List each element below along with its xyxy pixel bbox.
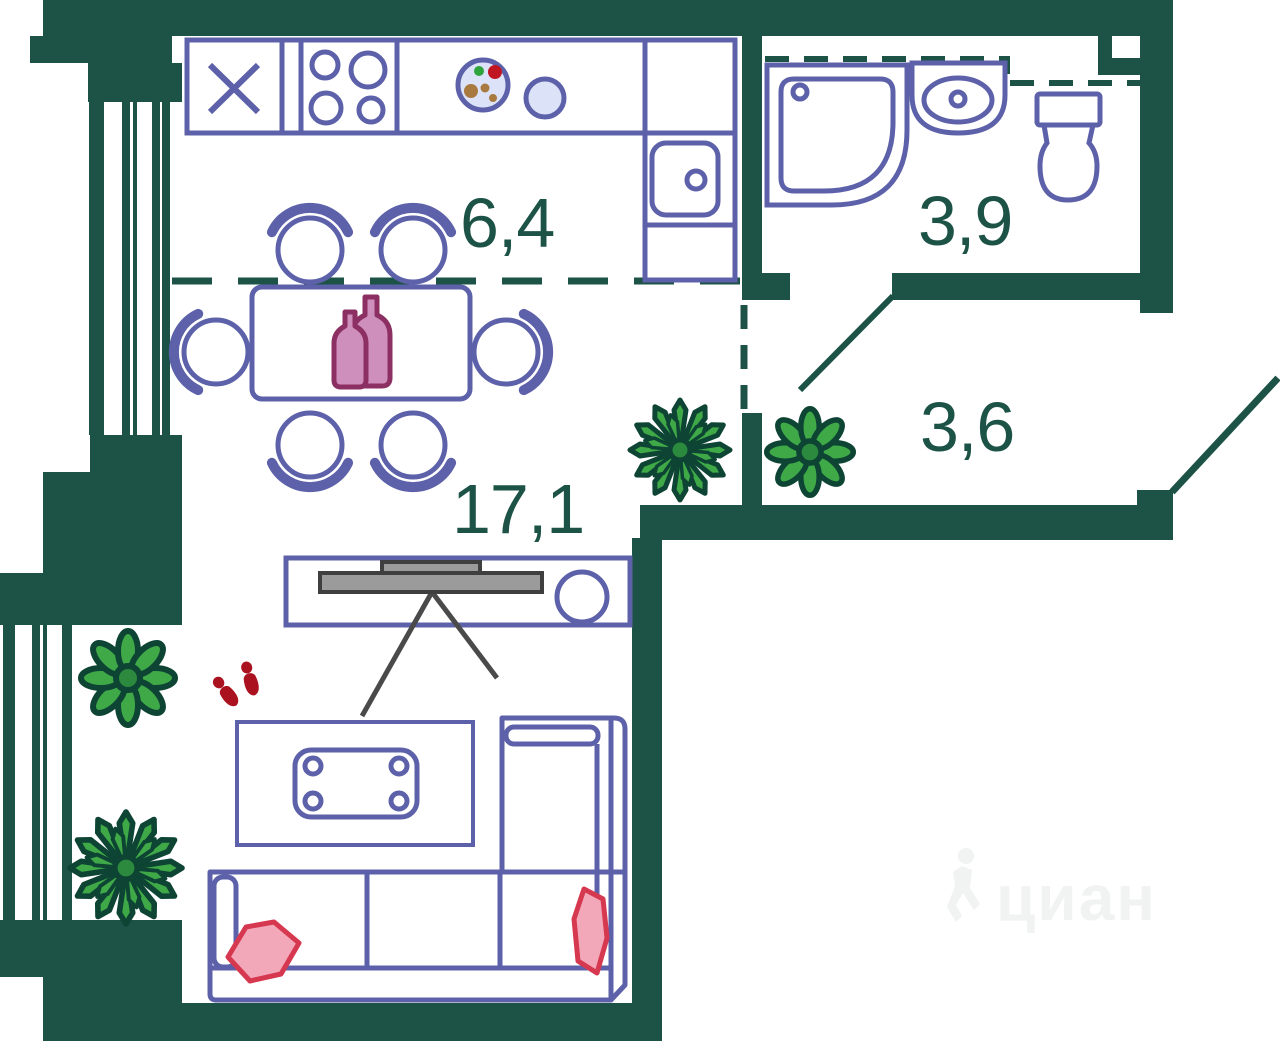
washbasin-icon xyxy=(912,63,1005,133)
chair xyxy=(272,208,348,282)
wall-left-divider xyxy=(90,435,182,625)
wall-hall-bottom xyxy=(640,505,1173,540)
entry-door-swing xyxy=(1172,378,1278,492)
glass-icon xyxy=(526,79,564,117)
hall-area-label: 3,6 xyxy=(920,392,1014,462)
chair xyxy=(474,314,548,390)
kitchen-area-label: 6,4 xyxy=(460,188,554,258)
wall-bathroom-bottom xyxy=(892,273,1140,300)
living-area-label: 17,1 xyxy=(452,474,584,544)
bathroom-door-swing xyxy=(800,296,893,390)
watermark: циан xyxy=(938,846,1157,930)
wall-top-left-step xyxy=(88,63,182,102)
window-upper xyxy=(89,102,170,435)
pillow-right xyxy=(574,889,607,973)
doors xyxy=(800,296,1278,492)
coffee-area xyxy=(237,722,473,845)
wall-left-divider-edge xyxy=(0,573,43,625)
chair xyxy=(375,208,451,282)
wall-bathroom-door-left xyxy=(742,273,790,300)
plant-icon xyxy=(70,812,182,924)
sofa-armrest-chaise xyxy=(506,727,598,744)
watermark-text: циан xyxy=(996,866,1157,930)
shower-icon xyxy=(767,65,907,205)
window-lower xyxy=(3,625,72,920)
wall-left-divider-step xyxy=(43,472,90,625)
wall-living-right xyxy=(632,538,662,1041)
counter-top-run xyxy=(187,40,645,133)
floorplan: 6,4 3,9 3,6 17,1 циан xyxy=(0,0,1280,1041)
toilet-icon xyxy=(1037,94,1100,200)
tv-screen xyxy=(320,573,542,592)
tv-unit xyxy=(286,558,630,716)
wall-shaft-bottom xyxy=(1098,58,1140,75)
wall-right-bar xyxy=(1140,0,1173,313)
chair xyxy=(174,314,248,390)
decor-bowl-icon xyxy=(557,572,607,622)
wall-entry-step xyxy=(1137,490,1173,505)
chair xyxy=(272,413,348,487)
cian-logo-icon xyxy=(938,846,986,930)
slippers-icon xyxy=(210,660,262,710)
wall-hall-stub xyxy=(742,413,762,505)
wall-top-left-block xyxy=(30,36,172,63)
wall-bathroom-partition xyxy=(742,36,762,300)
plant-icon xyxy=(767,409,853,495)
chair xyxy=(375,413,451,487)
kitchen-sink-icon xyxy=(652,143,718,215)
wall-top xyxy=(43,0,1173,36)
wall-bottom-left-block xyxy=(0,920,182,977)
plant-icon xyxy=(630,400,730,500)
plate-icon xyxy=(458,60,508,110)
plant-icon xyxy=(81,631,175,725)
wall-bottom-left-step xyxy=(43,977,182,1041)
wall-bottom xyxy=(182,1003,662,1041)
bathroom-area-label: 3,9 xyxy=(918,186,1012,256)
